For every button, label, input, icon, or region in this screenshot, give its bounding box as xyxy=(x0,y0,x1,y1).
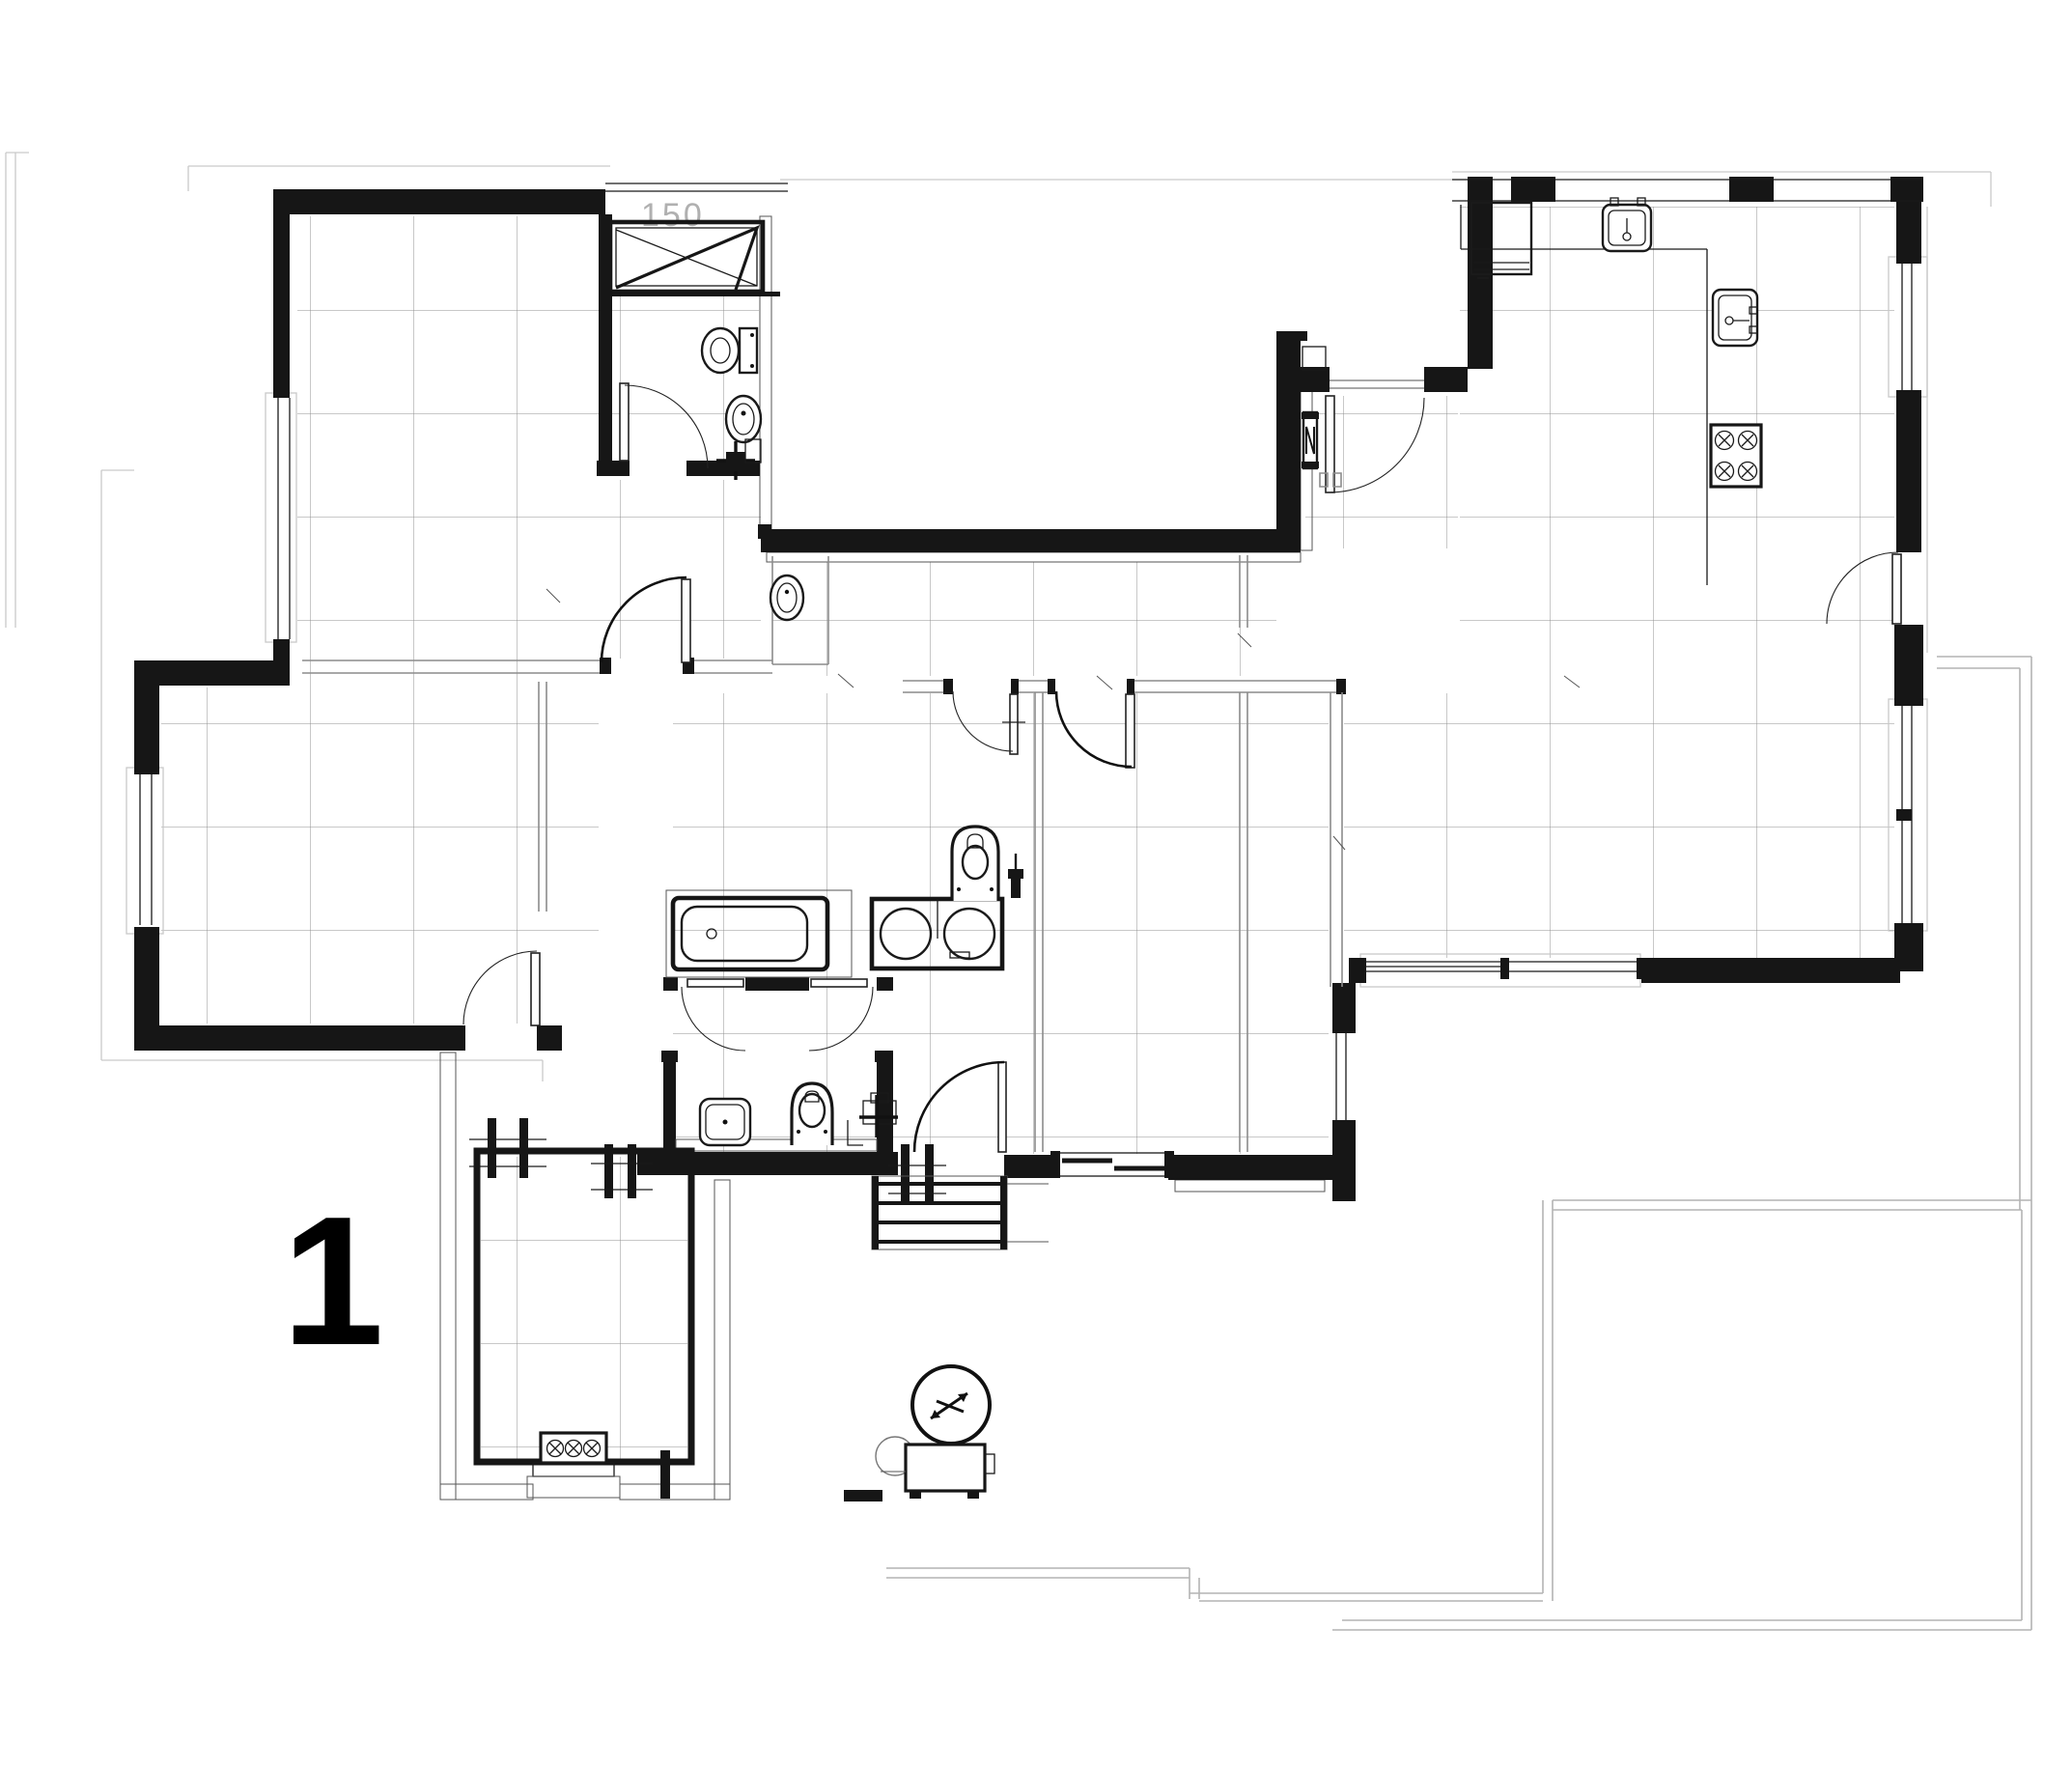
toilet-central xyxy=(952,827,998,901)
sliding-door xyxy=(1050,1151,1174,1178)
floor-plan-drawing: 150 xyxy=(0,0,2072,1768)
tile-grid xyxy=(161,207,1894,1459)
hall-basin xyxy=(770,575,803,620)
prep-sink xyxy=(1713,290,1757,346)
condenser-unit xyxy=(876,1437,994,1499)
plan-number-label: 1 xyxy=(282,1179,384,1384)
cooktop xyxy=(1711,425,1761,487)
mechanical xyxy=(876,1366,994,1499)
floor-plan-sheet: 150 xyxy=(0,0,2072,1768)
exterior-stairs xyxy=(872,1176,1049,1249)
washbasin xyxy=(726,396,761,442)
toilet-laundry xyxy=(792,1083,832,1145)
toilet xyxy=(702,328,757,373)
electrical-panel xyxy=(1302,412,1319,468)
kitchen-sink xyxy=(1603,198,1651,251)
laundry-sink xyxy=(700,1099,750,1145)
hvac-fan xyxy=(912,1366,990,1444)
